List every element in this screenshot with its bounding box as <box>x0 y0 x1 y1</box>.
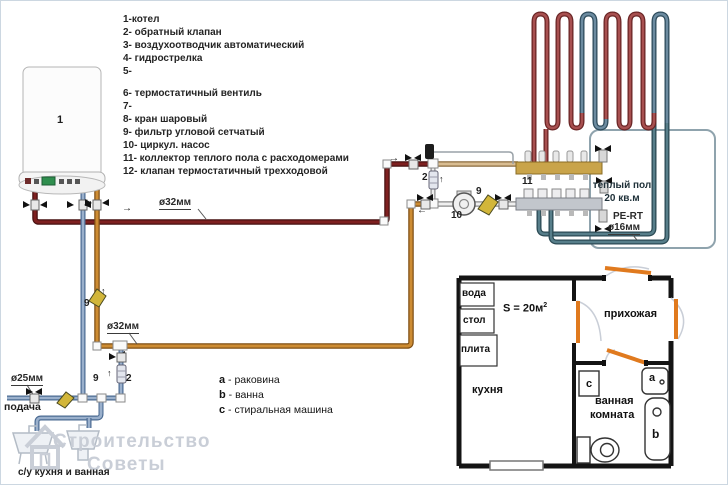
legend-item: 11- коллектор теплого пола с расходомера… <box>123 152 349 165</box>
flow-arrow-icon: ↑ <box>101 287 106 296</box>
check-valve-icon <box>429 171 438 189</box>
fixtures-legend-item: b - ванна <box>219 388 333 403</box>
counter-label-stove: плита <box>461 344 490 355</box>
legend-item: 10- циркул. насос <box>123 139 349 152</box>
legend-item: 2- обратный клапан <box>123 26 349 39</box>
flow-arrow-icon: ↑ <box>439 175 444 184</box>
collector-number-label: 11 <box>522 177 533 187</box>
filter-number-label: 9 <box>476 187 482 197</box>
component-legend: 1-котел 2- обратный клапан 3- воздухоотв… <box>123 13 349 178</box>
floor-heating-label: теплый пол 20 кв.м <box>587 179 657 205</box>
boiler <box>19 67 105 194</box>
floor-heating-coil <box>534 14 667 166</box>
legend-item: 4- гидрострелка <box>123 52 349 65</box>
pipe-diameter-label: ø16мм <box>608 223 640 235</box>
fixture-desc: - стиральная машина <box>225 404 333 416</box>
floor-heating-area: 20 кв.м <box>587 192 657 205</box>
flow-arrow-icon: → <box>122 204 132 214</box>
floor-plan <box>459 267 684 470</box>
legend-item: 7- <box>123 100 349 113</box>
pipe-diameter-label: ø32мм <box>107 322 139 334</box>
room-label-bathroom-1: ванная <box>595 395 634 407</box>
fixture-key: b <box>219 389 226 401</box>
fixture-desc: - ванна <box>226 389 264 401</box>
flow-arrow-icon: ↑ <box>107 369 112 378</box>
boiler-return-pipe <box>97 189 423 346</box>
boiler-panel-curve <box>19 176 105 194</box>
floor-heating-title: теплый пол <box>587 179 657 192</box>
legend-item: 6- термостатичный вентиль <box>123 87 349 100</box>
check-valve-icon <box>117 365 126 383</box>
check-valve-number-label: 2 <box>126 374 132 384</box>
legend-item: 3- воздухоотводчик автоматический <box>123 39 349 52</box>
boiler-button-icon <box>75 179 80 184</box>
supply-label: подача <box>4 402 41 413</box>
pipe-type-label: PE-RT <box>613 212 643 222</box>
filter-icon <box>57 392 74 408</box>
fixtures-legend-item: a - раковина <box>219 373 333 388</box>
filter-number-label: 9 <box>84 299 90 309</box>
collector-supply-bar <box>516 162 602 174</box>
boiler-knob-icon <box>34 179 39 184</box>
boiler-knob-icon <box>25 178 31 184</box>
washer-letter-label: c <box>586 378 592 390</box>
sink-letter-label: a <box>649 372 655 384</box>
boiler-number-label: 1 <box>57 115 63 126</box>
filter-number-label: 9 <box>93 374 99 384</box>
room-label-bathroom-2: комната <box>590 409 634 421</box>
flow-arrow-icon: ← <box>417 206 427 216</box>
legend-item: 1-котел <box>123 13 349 26</box>
fixtures-legend: a - раковина b - ванна c - стиральная ма… <box>219 373 333 418</box>
boiler-button-icon <box>67 179 72 184</box>
flow-arrow-icon: → <box>389 154 399 164</box>
window-icon <box>490 461 543 470</box>
boiler-display <box>42 177 55 185</box>
toilet-bowl-icon <box>591 438 619 462</box>
boiler-button-icon <box>59 179 64 184</box>
pipe-diameter-label: ø25мм <box>11 374 43 386</box>
check-valve-number-label: 2 <box>422 173 428 183</box>
legend-item: 5- <box>123 65 349 78</box>
loop-valve-caps <box>524 189 589 198</box>
heating-system-schematic: 1-котел 2- обратный клапан 3- воздухоотв… <box>0 0 728 485</box>
legend-item: 8- кран шаровый <box>123 113 349 126</box>
legend-item: 9- фильтр угловой сетчатый <box>123 126 349 139</box>
counter-label-water: вода <box>462 288 486 299</box>
counter-label-table: стол <box>463 315 486 326</box>
sanitary-label: с/у кухня и ванная <box>18 468 110 478</box>
fixture-desc: - раковина <box>225 374 280 386</box>
room-area-label: S = 20м2 <box>503 302 547 315</box>
thermostatic-head-icon <box>425 144 434 159</box>
toilet-tank-icon <box>577 437 590 463</box>
room-label-kitchen: кухня <box>472 384 503 396</box>
bath-letter-label: b <box>652 427 659 441</box>
watermark-text: Строительство <box>53 431 210 453</box>
coil-return-loops <box>582 14 667 128</box>
room-label-hallway: прихожая <box>604 308 657 320</box>
legend-item: 12- клапан термостатичный трехходовой <box>123 165 349 178</box>
fixtures-legend-item: c - стиральная машина <box>219 403 333 418</box>
pump-number-label: 10 <box>451 211 462 221</box>
pipe-diameter-label: ø32мм <box>159 198 191 210</box>
door-icon <box>607 350 646 363</box>
